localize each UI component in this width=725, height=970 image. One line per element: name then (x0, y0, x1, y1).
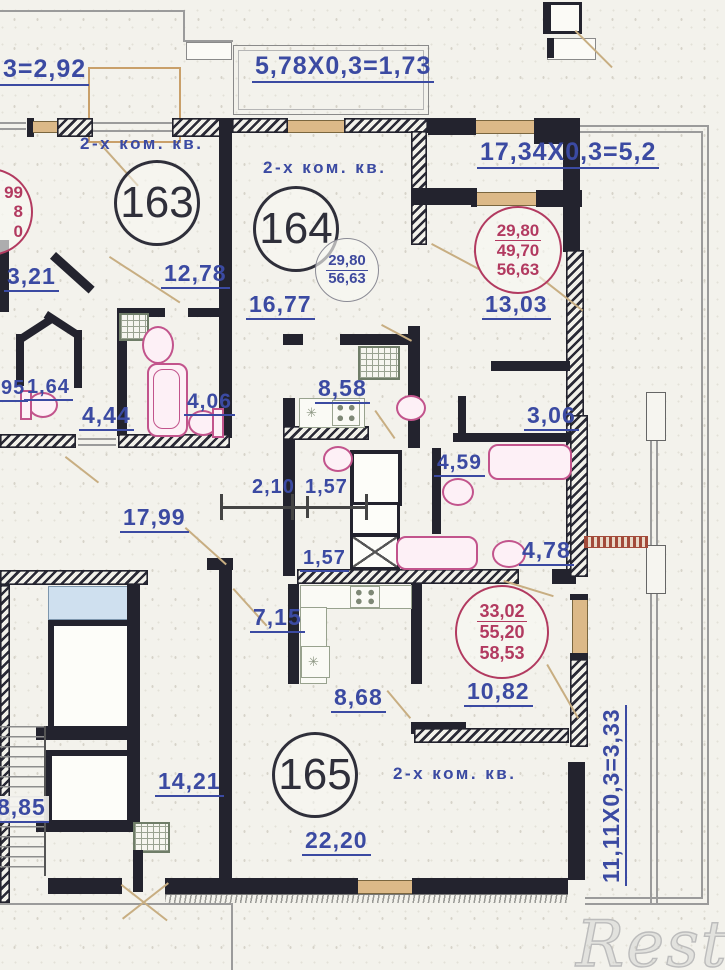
loggia-line (701, 131, 703, 899)
bathtub-inner (153, 369, 180, 429)
wall-hatch-strip (165, 894, 568, 903)
dim-tick (365, 494, 368, 520)
balcony-door-line (93, 130, 172, 132)
window (33, 121, 57, 133)
wall-segment (570, 659, 588, 747)
dim-tick (306, 496, 309, 518)
apartment-number: 163 (120, 178, 193, 228)
apartment-circle-165: 165 (272, 732, 358, 818)
door-line (78, 438, 116, 440)
balcony-line (231, 903, 233, 970)
window (476, 120, 534, 134)
dim-label: 4,78 (519, 539, 574, 566)
floor-plan: ✳ ✳ 163 164 165 29,80 56,63 29,80 49,70 … (0, 0, 725, 970)
dim-label: 8,68 (331, 686, 386, 713)
wall-segment (491, 361, 570, 371)
dim-label: 1,64 (24, 377, 73, 401)
wall-segment (283, 426, 369, 440)
area-value: 56,63 (328, 271, 366, 288)
wall-segment (127, 584, 140, 826)
dim-label: 10,82 (464, 680, 533, 707)
stove-icon (350, 586, 380, 608)
dim-label: 17,99 (120, 506, 189, 533)
dim-label: 3,21 (4, 265, 59, 292)
area-value: 58,53 (479, 643, 524, 663)
window (288, 120, 344, 133)
balcony-formula-vertical: 11,11X0,3=3,33 (600, 705, 627, 886)
window-line (0, 128, 26, 130)
dim-label: 8,85 (0, 796, 49, 823)
area-value: 55,20 (479, 622, 524, 642)
door-swing (65, 456, 99, 483)
door-swing (386, 690, 411, 719)
dim-label: 4,06 (184, 391, 235, 416)
wall-segment (283, 334, 303, 345)
balcony-door-line (93, 122, 172, 124)
area-circle-bottom-right: 33,02 55,20 58,53 (455, 585, 549, 679)
door-swing (122, 882, 169, 919)
sink-star-icon: ✳ (306, 406, 317, 419)
wall-segment (458, 396, 466, 434)
dim-tick (220, 494, 223, 520)
window (477, 192, 536, 206)
dim-label: 12,78 (161, 262, 230, 289)
dim-label: 1,57 (305, 477, 348, 497)
wall-segment (408, 326, 420, 448)
wall-segment (36, 820, 136, 832)
apt-type-label-165: 2-х ком. кв. (393, 764, 516, 784)
wall-segment (0, 570, 148, 585)
balcony-rail-163 (88, 67, 181, 143)
wall-segment (0, 434, 76, 448)
window-line (0, 122, 26, 124)
watermark: Restate (576, 908, 725, 970)
balcony-formula: 3=2,92 (0, 57, 89, 86)
apartment-number: 164 (259, 204, 332, 254)
sink (142, 326, 174, 364)
apartment-circle-163: 163 (114, 160, 200, 246)
door-line (78, 444, 116, 446)
balcony-line (0, 903, 233, 905)
wall-segment (219, 570, 232, 878)
bathtub (396, 536, 478, 570)
window (358, 880, 412, 894)
apartment-number: 165 (278, 750, 351, 800)
toilet (323, 446, 353, 472)
dim-line (222, 506, 368, 509)
dim-label: 16,77 (246, 293, 315, 320)
area-value: 0 (14, 222, 23, 241)
loggia-column (646, 545, 666, 594)
paper-line (0, 10, 183, 12)
area-value: 49,70 (497, 241, 540, 260)
loggia-divider (584, 536, 648, 548)
wall-segment (411, 584, 422, 684)
wall-segment (547, 38, 554, 58)
vent-shaft (350, 534, 400, 570)
wall-segment (165, 878, 358, 894)
area-value: 56,63 (497, 260, 540, 279)
wall-segment (232, 118, 288, 133)
wall-segment (74, 330, 82, 388)
balcony-formula: 17,34X0,3=5,2 (477, 140, 659, 169)
area-value: 29,80 (326, 253, 368, 271)
area-value: 29,80 (495, 221, 542, 241)
dim-label: 13,03 (482, 293, 551, 320)
wall-segment (414, 728, 569, 743)
bathtub (488, 444, 572, 480)
window (572, 600, 588, 653)
area-circle-left-partial: 99 8 0 (0, 168, 33, 256)
loggia-column (646, 392, 666, 441)
apt-type-label-163: 2-х ком. кв. (80, 134, 203, 154)
area-circle-164: 29,80 56,63 (315, 238, 379, 302)
balcony-formula: 5,78X0,3=1,73 (252, 54, 434, 83)
sink-star-icon: ✳ (308, 655, 319, 668)
dim-label: 22,20 (302, 829, 371, 856)
elevator-door-zone (48, 586, 128, 620)
area-value: 99 (4, 183, 23, 202)
column-box (186, 42, 232, 60)
dim-label: 8,58 (315, 377, 370, 404)
wall-segment (133, 850, 143, 892)
dim-label: 14,21 (155, 770, 224, 797)
wall-segment (36, 726, 136, 740)
paper-line (183, 10, 185, 42)
dim-label: 2,10 (252, 477, 295, 497)
wall-segment (188, 308, 220, 317)
loggia-rail (656, 392, 658, 903)
door-swing (185, 527, 227, 565)
loggia-line (707, 125, 709, 905)
wall-segment (453, 433, 570, 442)
apt-type-label-164: 2-х ком. кв. (263, 158, 386, 178)
dim-label: 7,15 (250, 606, 305, 633)
wall-segment (568, 762, 585, 880)
dim-label: 1,57 (300, 548, 349, 572)
loggia-line (585, 897, 703, 899)
area-value: 33,02 (477, 601, 526, 622)
vent-shaft (350, 450, 402, 506)
area-value: 8 (14, 202, 23, 221)
toilet (442, 478, 474, 506)
wall-segment (48, 878, 122, 894)
wall-segment (428, 118, 476, 135)
loggia-rail (650, 392, 652, 903)
dim-label: 4,59 (434, 452, 485, 477)
toilet (396, 395, 426, 421)
wall-segment (412, 878, 568, 894)
wall-segment (288, 584, 299, 684)
area-circle-top-right: 29,80 49,70 56,63 (474, 206, 562, 294)
vent-shaft (133, 822, 170, 853)
wall-segment (411, 188, 477, 205)
dim-label: 4,44 (79, 404, 134, 431)
door-swing (374, 410, 395, 439)
column-box (547, 38, 596, 60)
loggia-line (585, 903, 709, 905)
dim-label: 3,06 (524, 404, 579, 431)
